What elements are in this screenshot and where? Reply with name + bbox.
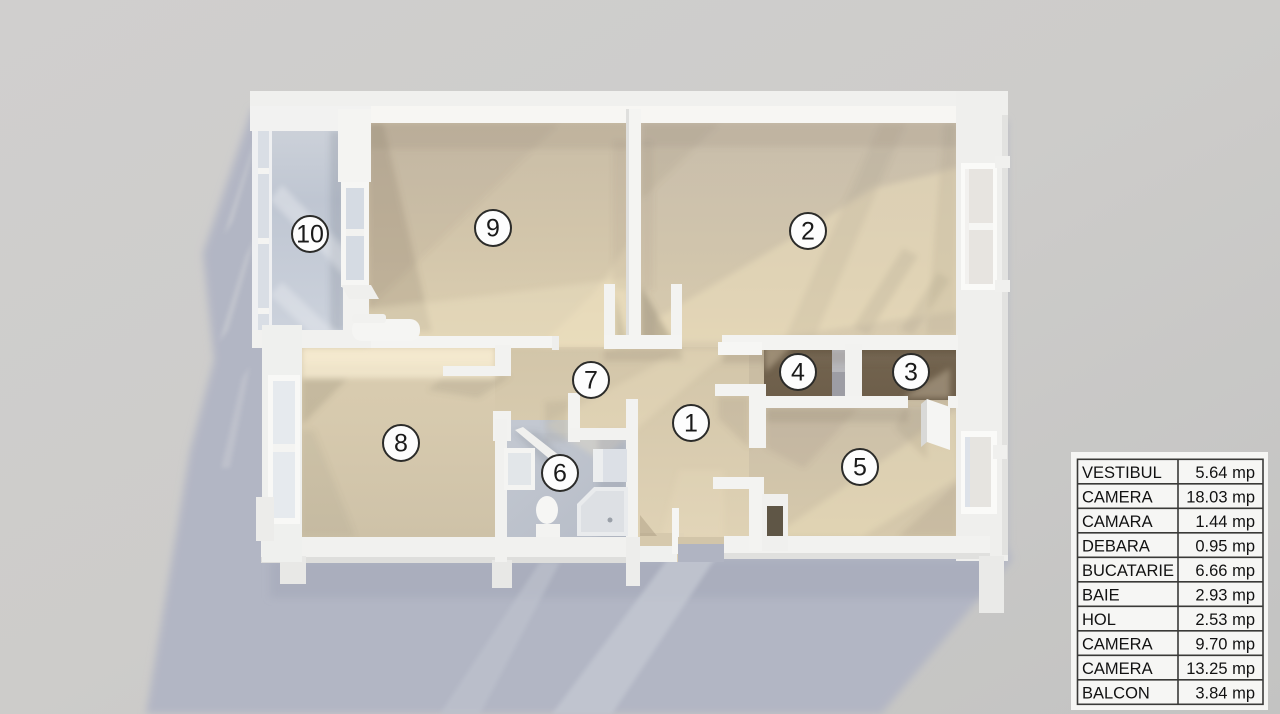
- svg-text:9.70 mp: 9.70 mp: [1195, 635, 1255, 653]
- svg-text:4: 4: [791, 359, 805, 387]
- svg-text:6.66 mp: 6.66 mp: [1195, 562, 1255, 580]
- svg-text:3.84 mp: 3.84 mp: [1195, 684, 1255, 702]
- svg-text:CAMERA: CAMERA: [1082, 660, 1153, 678]
- svg-text:3: 3: [904, 359, 918, 387]
- svg-text:CAMERA: CAMERA: [1082, 635, 1153, 653]
- svg-text:13.25 mp: 13.25 mp: [1186, 660, 1255, 678]
- svg-text:0.95 mp: 0.95 mp: [1195, 537, 1255, 555]
- svg-text:1.44 mp: 1.44 mp: [1195, 513, 1255, 531]
- svg-text:DEBARA: DEBARA: [1082, 537, 1150, 555]
- svg-text:VESTIBUL: VESTIBUL: [1082, 464, 1162, 482]
- svg-text:BAIE: BAIE: [1082, 586, 1120, 604]
- svg-text:2.93 mp: 2.93 mp: [1195, 586, 1255, 604]
- svg-text:1: 1: [684, 410, 698, 438]
- svg-text:2: 2: [801, 218, 815, 246]
- svg-text:CAMARA: CAMARA: [1082, 513, 1153, 531]
- svg-text:7: 7: [584, 367, 598, 395]
- svg-text:8: 8: [394, 430, 408, 458]
- svg-text:BUCATARIE: BUCATARIE: [1082, 562, 1174, 580]
- svg-text:BALCON: BALCON: [1082, 684, 1150, 702]
- svg-text:10: 10: [296, 221, 324, 249]
- svg-text:5: 5: [853, 454, 867, 482]
- svg-text:CAMERA: CAMERA: [1082, 488, 1153, 506]
- svg-text:9: 9: [486, 215, 500, 243]
- svg-text:HOL: HOL: [1082, 611, 1116, 629]
- svg-text:6: 6: [553, 460, 567, 488]
- svg-text:2.53 mp: 2.53 mp: [1195, 611, 1255, 629]
- svg-text:18.03 mp: 18.03 mp: [1186, 488, 1255, 506]
- svg-text:5.64 mp: 5.64 mp: [1195, 464, 1255, 482]
